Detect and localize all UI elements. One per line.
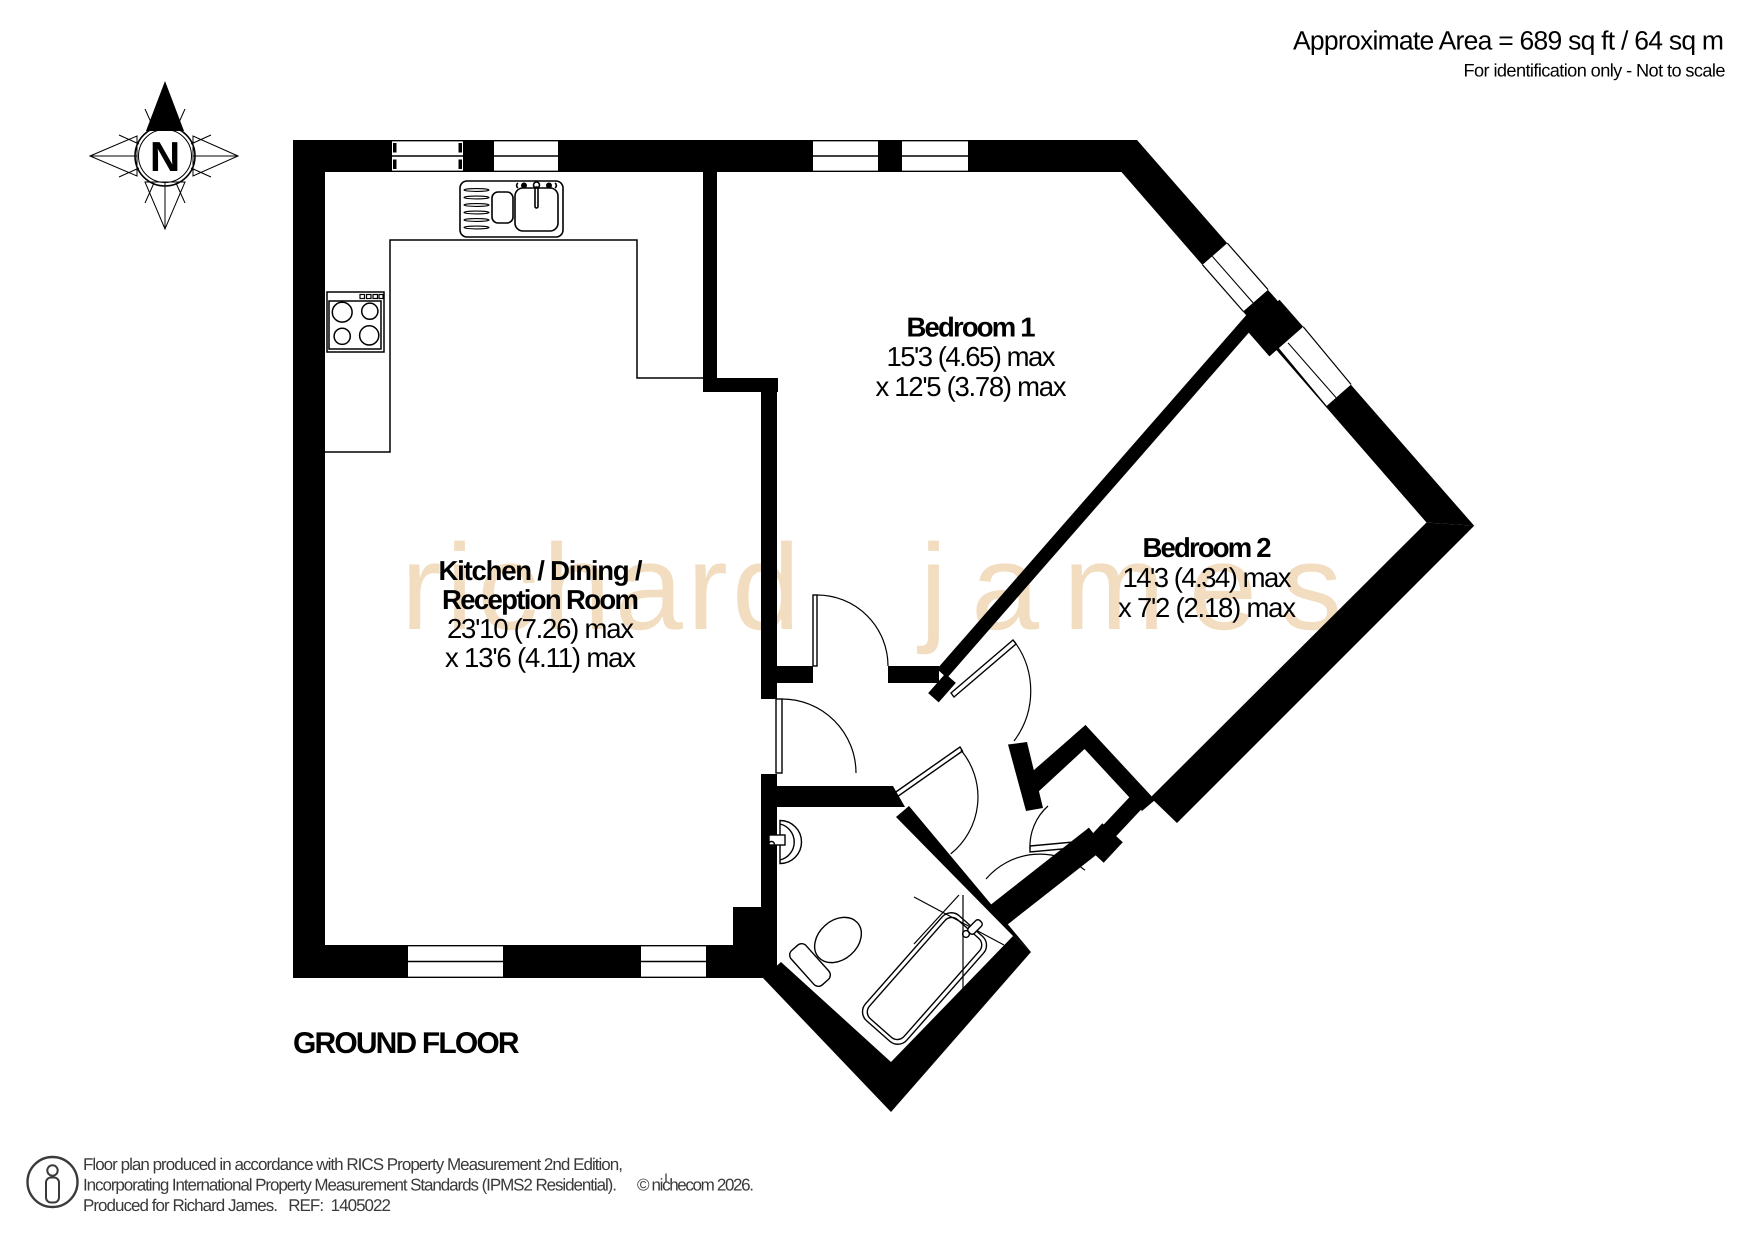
svg-text:15'3 (4.65) max: 15'3 (4.65) max	[887, 341, 1056, 372]
svg-text:x 13'6 (4.11) max: x 13'6 (4.11) max	[445, 642, 636, 673]
svg-text:x 7'2 (2.18) max: x 7'2 (2.18) max	[1118, 592, 1296, 623]
svg-text:N: N	[150, 133, 180, 180]
svg-text:Reception Room: Reception Room	[442, 584, 639, 615]
svg-text:Approximate Area = 689 sq ft /: Approximate Area = 689 sq ft / 64 sq m	[1293, 26, 1724, 56]
svg-text:Bedroom 1: Bedroom 1	[907, 312, 1036, 343]
svg-text:Produced for Richard James.: Produced for Richard James. REF: 1405022	[83, 1196, 391, 1215]
svg-text:© nichecom 2026.: © nichecom 2026.	[637, 1176, 754, 1195]
svg-text:Incorporating International Pr: Incorporating International Property Mea…	[83, 1176, 617, 1195]
svg-text:23'10 (7.26) max: 23'10 (7.26) max	[447, 613, 634, 644]
svg-text:Floor plan produced in accorda: Floor plan produced in accordance with R…	[83, 1155, 623, 1174]
svg-text:x 12'5 (3.78) max: x 12'5 (3.78) max	[876, 371, 1067, 402]
svg-text:GROUND FLOOR: GROUND FLOOR	[293, 1027, 520, 1060]
svg-text:14'3 (4.34) max: 14'3 (4.34) max	[1123, 562, 1292, 593]
svg-text:Bedroom 2: Bedroom 2	[1143, 532, 1272, 563]
svg-text:For identification only - Not: For identification only - Not to scale	[1464, 60, 1726, 80]
svg-text:Kitchen / Dining /: Kitchen / Dining /	[439, 555, 643, 586]
